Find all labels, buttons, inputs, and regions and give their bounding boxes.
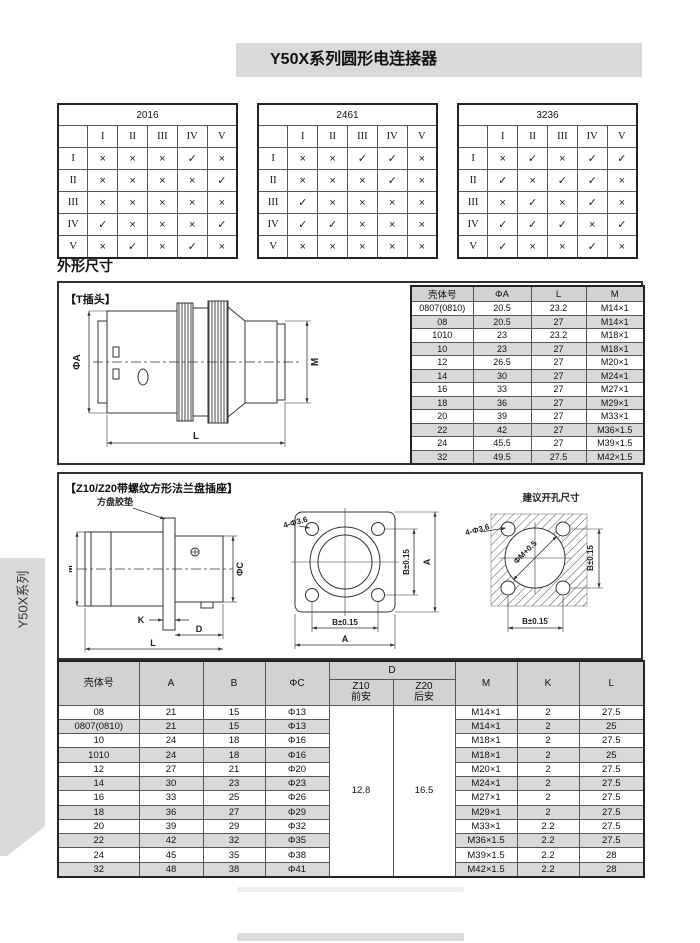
compat-matrix: 2016IIIIIIIVVI×××✓×II××××✓III×××××IV✓×××… [57,103,238,259]
cell: 08 [411,315,473,329]
cell: 21 [203,762,265,776]
cell: 32 [58,862,139,876]
matrix-cell: × [607,236,637,259]
cell: 32 [411,450,473,464]
cell: 1010 [411,329,473,343]
matrix-cell: × [407,236,437,259]
cell: 2 [517,705,579,719]
cell: Φ41 [265,862,329,876]
matrix-cell: × [407,192,437,214]
matrix-cell: × [377,214,407,236]
side-tab-label: Y50X系列 [13,552,32,648]
matrix-cell: ✓ [177,148,207,170]
cutout-title: 建议开孔尺寸 [521,492,580,504]
dim-b-right-label: B±0.15 [586,545,595,571]
matrix-col-header: III [547,126,577,148]
cell: 27.5 [579,762,644,776]
cell: 25 [203,791,265,805]
cell: Φ16 [265,748,329,762]
cell: 49.5 [473,450,531,464]
cell: M29×1 [586,396,644,410]
cell: 39 [473,410,531,424]
matrix-cell: × [88,170,118,192]
cell: 18 [58,805,139,819]
cell: 15 [203,719,265,733]
cell: M14×1 [455,719,517,733]
matrix-cell: × [118,214,148,236]
matrix-3236: 3236IIIIIIIVVI×✓×✓✓II✓×✓✓×III×✓×✓×IV✓✓✓×… [457,103,638,259]
dim-m-label: M [310,358,321,366]
matrix-cell: × [488,192,518,214]
matrix-cell: × [377,192,407,214]
matrix-title: 3236 [458,104,637,126]
cell: M24×1 [586,369,644,383]
matrix-cell: ✓ [88,214,118,236]
dim-b-label: B±0.15 [402,549,411,575]
cell: M36×1.5 [455,834,517,848]
matrix-row-header: III [458,192,488,214]
matrix-cell: × [88,148,118,170]
col-header: ΦC [265,661,329,705]
z-socket-dimensions [77,532,237,652]
cell: 2.2 [517,834,579,848]
cell: Φ38 [265,848,329,862]
cell: Φ13 [265,719,329,733]
matrix-col-header: III [147,126,177,148]
matrix-cell: ✓ [488,214,518,236]
matrix-title: 2461 [258,104,437,126]
matrix-col-header: II [118,126,148,148]
matrix-cell: × [288,236,318,259]
cell: M20×1 [586,356,644,370]
cell: 28 [579,862,644,876]
cell: 32 [203,834,265,848]
cell: M20×1 [455,762,517,776]
z-socket-box: 【Z10/Z20带螺纹方形法兰盘插座】 方盘胶垫 [57,472,643,660]
cell: 21 [139,719,203,733]
matrix-row-header: V [58,236,88,259]
cell: 12 [411,356,473,370]
matrix-cell: × [347,214,377,236]
cell: 23.2 [531,302,586,316]
col-header: 壳体号 [58,661,139,705]
matrix-col-header: II [518,126,548,148]
dim-l-label: L [193,431,199,442]
cell: M29×1 [455,805,517,819]
cell: 22 [58,834,139,848]
cell: M18×1 [455,734,517,748]
cell: 30 [139,776,203,790]
matrix-row-header: V [458,236,488,259]
matrix-cell: × [377,236,407,259]
matrix-cell: × [607,192,637,214]
d-value-cell: 16.5 [393,705,455,877]
matrix-row-header: III [58,192,88,214]
compat-matrix: 3236IIIIIIIVVI×✓×✓✓II✓×✓✓×III×✓×✓×IV✓✓✓×… [457,103,638,259]
cell: M42×1.5 [586,450,644,464]
cell: Φ13 [265,705,329,719]
matrix-cell: ✓ [488,170,518,192]
matrix-cell: ✓ [518,192,548,214]
cell: 33 [139,791,203,805]
cell: Φ26 [265,791,329,805]
matrix-col-header: III [347,126,377,148]
dim-phiA-label: ΦA [72,354,83,369]
matrix-cell: ✓ [518,148,548,170]
matrix-cell: × [118,192,148,214]
matrix-cell: × [88,192,118,214]
cell: 20 [411,410,473,424]
cell: 27 [531,356,586,370]
cell: 24 [411,437,473,451]
cell: Φ20 [265,762,329,776]
t-plug-drawing: ΦA M L [67,291,407,459]
cell: Φ16 [265,734,329,748]
col-header: M [586,286,644,302]
page-title: Y50X系列圆形电连接器 [236,43,642,77]
matrix-cell: × [318,170,348,192]
cell: 2 [517,734,579,748]
matrix-cell: × [177,170,207,192]
matrix-cell: × [177,214,207,236]
col-header: B [203,661,265,705]
matrix-cell: × [488,148,518,170]
col-header: ΦA [473,286,531,302]
matrix-cell: × [288,148,318,170]
cell: 24 [139,734,203,748]
cell: 10 [411,342,473,356]
matrix-corner [258,126,288,148]
dim-k-label: K [138,615,145,625]
matrix-cell: × [547,148,577,170]
footer-strip-light [237,887,464,892]
cell: 2 [517,776,579,790]
cell: 18 [203,748,265,762]
matrix-col-header: V [407,126,437,148]
holes-label: 4-Φ3.6 [282,515,309,530]
matrix-cell: ✓ [177,236,207,259]
cell: 26.5 [473,356,531,370]
matrix-cell: × [207,148,237,170]
cell: 22 [411,423,473,437]
d-value-cell: 12.8 [329,705,393,877]
section-heading: 外形尺寸 [57,256,113,276]
cell: M24×1 [455,776,517,790]
cell: 23 [473,342,531,356]
cell: 27.5 [579,834,644,848]
cell: 27.5 [579,819,644,833]
cell: 27 [139,762,203,776]
flange-face [291,508,399,616]
z-socket-front-drawing: 4-Φ3.6 B±0.15 A B±0.15 A [281,500,471,658]
cell: 20 [58,819,139,833]
cell: 0807(0810) [411,302,473,316]
holes-label: 4-Φ3.6 [464,522,491,537]
dim-phiC-label: ΦC [235,562,245,576]
cell: 27.5 [579,791,644,805]
cell: 18 [203,734,265,748]
cell: 16 [58,791,139,805]
matrix-2016: 2016IIIIIIIVVI×××✓×II××××✓III×××××IV✓×××… [57,103,238,259]
z-socket-body [77,518,233,630]
cell: M36×1.5 [586,423,644,437]
gasket-label: 方盘胶垫 [97,496,133,507]
cell: 2 [517,748,579,762]
cell: 36 [473,396,531,410]
matrix-cell: ✓ [577,236,607,259]
cell: 15 [203,705,265,719]
matrix-row-header: II [458,170,488,192]
matrix-cell: ✓ [577,192,607,214]
dim-a-label: A [422,558,432,565]
cell: 1010 [58,748,139,762]
matrix-cell: ✓ [488,236,518,259]
cell: 36 [139,805,203,819]
matrix-row-header: IV [258,214,288,236]
matrix-cell: × [88,236,118,259]
matrix-title: 2016 [58,104,237,126]
matrix-cell: ✓ [288,192,318,214]
col-header: L [531,286,586,302]
matrix-cell: × [547,192,577,214]
matrix-row-header: IV [58,214,88,236]
cell: M14×1 [455,705,517,719]
matrix-cell: × [318,236,348,259]
cell: 42 [139,834,203,848]
matrix-row-header: I [258,148,288,170]
cell: 23 [203,776,265,790]
col-header: 壳体号 [411,286,473,302]
cell: 27.5 [579,734,644,748]
matrix-corner [458,126,488,148]
cell: 45.5 [473,437,531,451]
cell: 29 [203,819,265,833]
z-socket-cutout-drawing: 建议开孔尺寸 ΦM+0.5 4-Φ3.6 [463,488,641,658]
cell: 27 [531,437,586,451]
t-plug-table-wrap: 壳体号ΦALM0807(0810)20.523.2M14×10820.527M1… [410,285,645,465]
matrix-cell: × [607,170,637,192]
matrix-col-header: IV [177,126,207,148]
cell: M18×1 [455,748,517,762]
cell: M42×1.5 [455,862,517,876]
cell: M33×1 [455,819,517,833]
matrix-cell: ✓ [518,214,548,236]
cell: 24 [139,748,203,762]
cell: 27 [531,423,586,437]
matrix-cell: × [318,148,348,170]
matrix-col-header: IV [377,126,407,148]
matrix-cell: ✓ [377,148,407,170]
matrix-col-header: V [607,126,637,148]
matrix-cell: × [518,170,548,192]
matrix-cell: × [318,192,348,214]
z-socket-side-drawing: 方盘胶垫 [69,492,299,657]
cell: 0807(0810) [58,719,139,733]
cell: 21 [139,705,203,719]
matrix-cell: × [407,214,437,236]
matrix-col-header: II [318,126,348,148]
cell: M27×1 [455,791,517,805]
t-plug-dimensions [89,311,311,447]
matrix-row-header: I [58,148,88,170]
matrix-cell: ✓ [318,214,348,236]
cell: 27 [531,396,586,410]
matrix-row-header: I [458,148,488,170]
cell: M33×1 [586,410,644,424]
matrix-row-header: IV [458,214,488,236]
cell: Φ35 [265,834,329,848]
col-subheader: Z10前安 [329,679,393,705]
matrix-cell: ✓ [288,214,318,236]
matrix-cell: × [118,148,148,170]
cell: 2 [517,719,579,733]
matrix-row-header: V [258,236,288,259]
flange-table-wrap: 壳体号ABΦCDMKLZ10前安Z20后安082115Φ1312.816.5M1… [57,660,645,878]
cell: M27×1 [586,383,644,397]
col-subheader: Z20后安 [393,679,455,705]
cell: 38 [203,862,265,876]
side-tab: Y50X系列 [0,558,45,856]
cell: 27.5 [531,450,586,464]
matrix-cell: × [407,170,437,192]
cell: Φ23 [265,776,329,790]
cell: M39×1.5 [586,437,644,451]
cell: M18×1 [586,342,644,356]
cell: 23 [473,329,531,343]
matrix-cell: × [147,148,177,170]
matrix-col-header: I [488,126,518,148]
cell: 10 [58,734,139,748]
matrix-cell: × [207,192,237,214]
cell: 27 [531,369,586,383]
cell: 48 [139,862,203,876]
cell: Φ29 [265,805,329,819]
dim-b-bottom-label: B±0.15 [522,617,548,626]
matrix-cell: ✓ [577,148,607,170]
dim-a-bottom-label: A [342,634,349,644]
cell: 20.5 [473,315,531,329]
cell: 25 [579,719,644,733]
matrix-cell: ✓ [207,214,237,236]
matrix-row-header: II [258,170,288,192]
matrix-cell: × [347,236,377,259]
matrix-cell: ✓ [607,148,637,170]
matrix-corner [58,126,88,148]
cell: 16 [411,383,473,397]
cell: 08 [58,705,139,719]
dim-b-bottom-label: B±0.15 [332,618,358,627]
matrix-row-header: III [258,192,288,214]
col-header: M [455,661,517,705]
cell: 27.5 [579,705,644,719]
col-header-d: D [329,661,455,679]
cell: M39×1.5 [455,848,517,862]
cell: Φ32 [265,819,329,833]
cell: 2 [517,791,579,805]
cell: 27 [203,805,265,819]
cell: M18×1 [586,329,644,343]
matrix-col-header: V [207,126,237,148]
matrix-cell: × [177,192,207,214]
t-plug-box: 【T插头】 [57,281,643,465]
datasheet-page: Y50X系列圆形电连接器 Y50X系列 2016IIIIIIIVVI×××✓×I… [0,0,700,943]
matrix-cell: ✓ [577,170,607,192]
cell: 18 [411,396,473,410]
dim-l-label: L [150,638,156,648]
cell: 27 [531,410,586,424]
matrix-cell: × [407,148,437,170]
matrix-cell: ✓ [547,170,577,192]
matrix-cell: ✓ [118,236,148,259]
matrix-col-header: I [88,126,118,148]
matrix-cell: ✓ [377,170,407,192]
t-plug-body [93,301,299,423]
matrix-cell: × [147,236,177,259]
matrix-cell: ✓ [607,214,637,236]
cell: 25 [579,748,644,762]
cell: 23.2 [531,329,586,343]
cell: 2 [517,762,579,776]
cell: 27 [531,383,586,397]
cell: M14×1 [586,315,644,329]
matrix-col-header: I [288,126,318,148]
cell: M14×1 [586,302,644,316]
cell: 27 [531,342,586,356]
cell: 12 [58,762,139,776]
cell: 45 [139,848,203,862]
cell: 2.2 [517,848,579,862]
matrix-cell: × [147,170,177,192]
cell: 20.5 [473,302,531,316]
t-plug-table: 壳体号ΦALM0807(0810)20.523.2M14×10820.527M1… [410,285,645,465]
matrix-cell: × [547,236,577,259]
cell: 2.2 [517,862,579,876]
cell: 42 [473,423,531,437]
cell: 30 [473,369,531,383]
compat-matrix: 2461IIIIIIIVVI××✓✓×II×××✓×III✓××××IV✓✓××… [257,103,438,259]
footer-strip-dark [237,933,464,941]
cell: 27.5 [579,805,644,819]
col-header: A [139,661,203,705]
cell: 39 [139,819,203,833]
cell: 2.2 [517,819,579,833]
col-header: L [579,661,644,705]
matrix-col-header: IV [577,126,607,148]
matrix-cell: ✓ [207,170,237,192]
matrix-cell: × [207,236,237,259]
cell: 24 [58,848,139,862]
dim-m-label: M [69,565,74,573]
flange-dimensions [295,512,439,649]
cell: 33 [473,383,531,397]
matrix-cell: × [577,214,607,236]
matrix-cell: × [347,170,377,192]
matrix-2461: 2461IIIIIIIVVI××✓✓×II×××✓×III✓××××IV✓✓××… [257,103,438,259]
matrix-cell: × [147,192,177,214]
cell: 14 [411,369,473,383]
cell: 35 [203,848,265,862]
flange-table: 壳体号ABΦCDMKLZ10前安Z20后安082115Φ1312.816.5M1… [57,660,645,878]
cell: 28 [579,848,644,862]
matrix-cell: × [518,236,548,259]
col-header: K [517,661,579,705]
matrix-cell: ✓ [547,214,577,236]
matrix-cell: × [288,170,318,192]
matrix-cell: × [347,192,377,214]
dim-d-label: D [196,624,203,634]
cell: 27 [531,315,586,329]
matrix-row-header: II [58,170,88,192]
